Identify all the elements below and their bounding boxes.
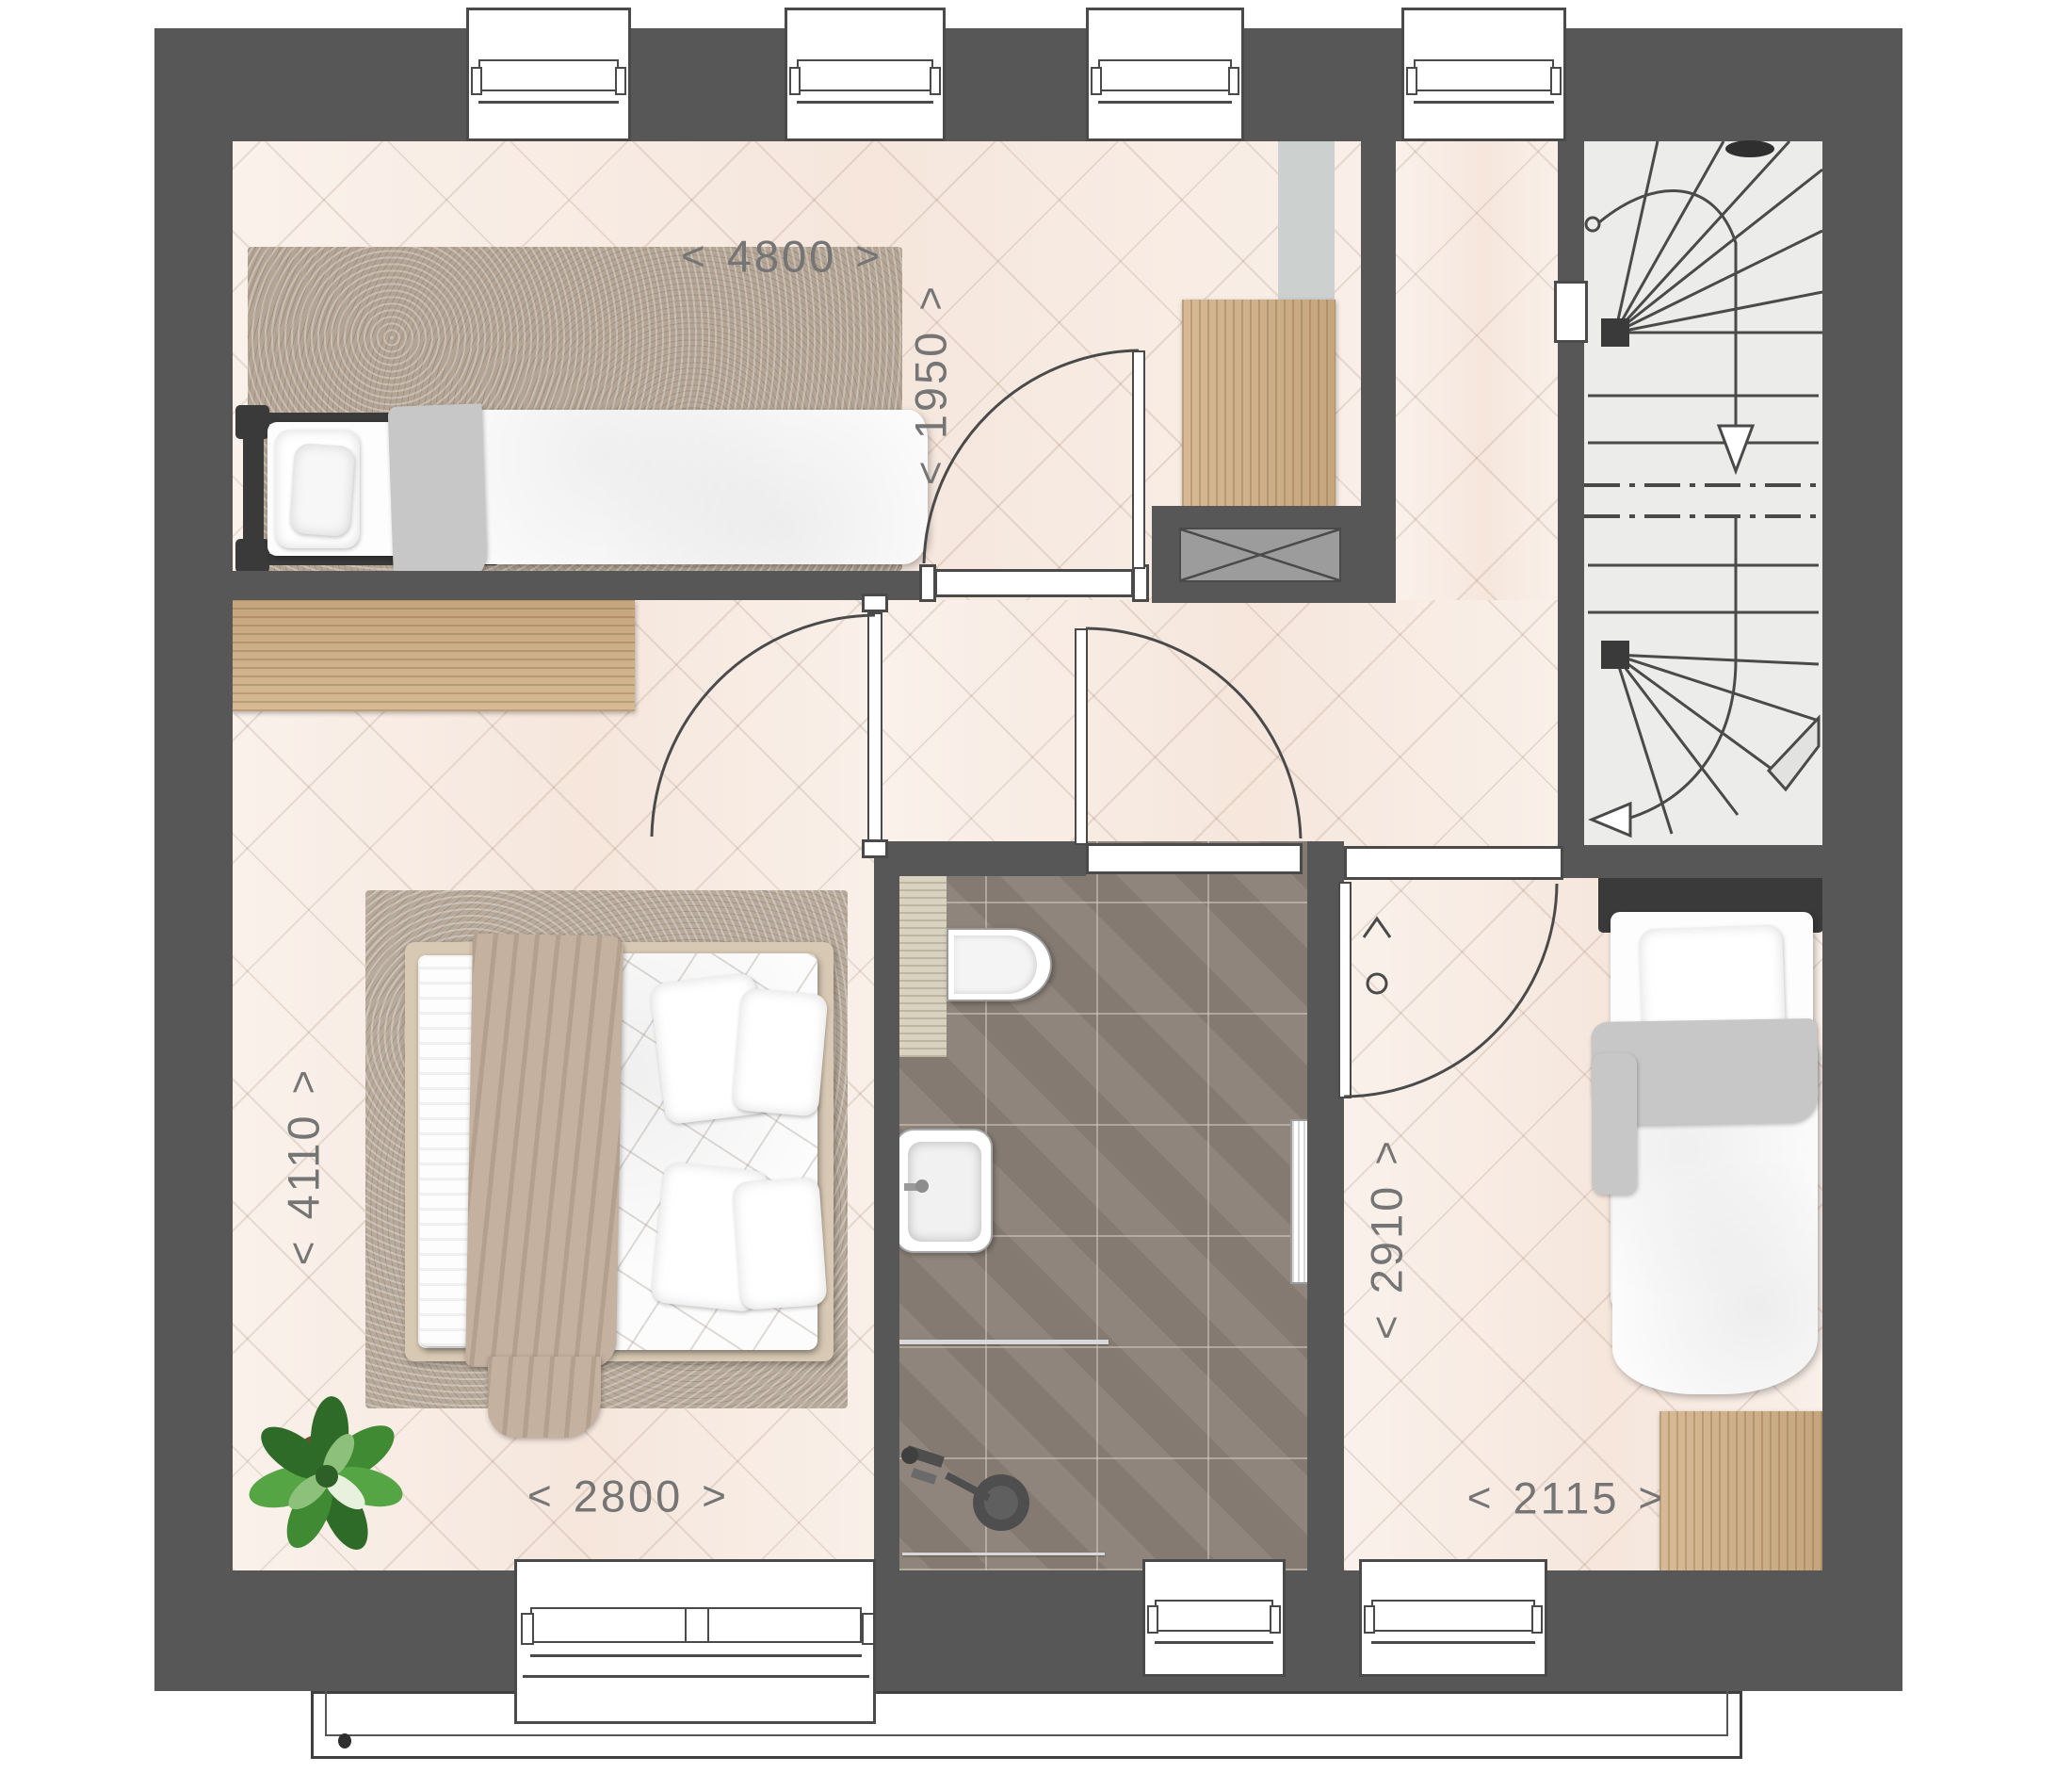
- window-icon: [785, 8, 946, 141]
- dim-arrow-left: <: [907, 458, 954, 485]
- bed-pillow: [732, 987, 829, 1117]
- floor-plan: < 4800 > < 1950 > < 4110 > < 2800 > < 29…: [0, 0, 2072, 1773]
- wall-outer-bottom: [154, 1570, 1902, 1691]
- dimension-2800: < 2800 >: [527, 1471, 729, 1522]
- dim-value: 2800: [574, 1471, 684, 1522]
- dim-arrow-right: >: [907, 284, 954, 311]
- dimension-4800: < 4800 >: [681, 231, 882, 283]
- bed-frame: [1598, 874, 1822, 916]
- window-icon: [1359, 1559, 1547, 1677]
- dim-arrow-right: >: [855, 233, 882, 280]
- shower-glass-partition: [899, 1340, 1109, 1344]
- bed-blanket-gray: [1592, 1053, 1637, 1195]
- door-leaf-bedroom-right: [1338, 882, 1352, 1098]
- desk-bedroom-right: [1659, 1411, 1825, 1570]
- dim-value: 4800: [727, 231, 837, 283]
- dim-arrow-right: >: [280, 1067, 327, 1095]
- door-leaf-bathroom: [1075, 628, 1088, 845]
- dimension-1950: < 1950 >: [905, 284, 957, 485]
- bed-blanket-gray: [388, 403, 489, 591]
- bed-duvet: [433, 410, 928, 564]
- door-leaf-bedroom-top: [1132, 350, 1145, 569]
- single-bed-right: [1592, 874, 1825, 1394]
- bed-frame: [243, 411, 264, 567]
- toilet-icon: [947, 928, 1052, 1001]
- dim-arrow-right: >: [1363, 1138, 1410, 1165]
- door-threshold-bedroom-top: [934, 569, 1134, 597]
- towel-radiator-icon: [1290, 1119, 1309, 1284]
- door-jamb: [1132, 564, 1149, 602]
- vent-shaft-icon: [1179, 528, 1341, 582]
- dim-arrow-left: <: [1363, 1312, 1410, 1340]
- door-leaf-bedroom-master: [867, 612, 882, 841]
- door-jamb: [862, 839, 888, 858]
- door-jamb: [919, 564, 936, 602]
- double-bed-master: [405, 942, 834, 1361]
- door-threshold-bathroom: [1086, 843, 1303, 874]
- door-jamb: [862, 594, 888, 612]
- wall-bathroom-left: [874, 841, 899, 1570]
- dim-arrow-left: <: [527, 1472, 555, 1520]
- bathroom-vanity: [899, 876, 947, 1057]
- sink-icon: [895, 1129, 993, 1253]
- wall-stair-left: [1558, 141, 1584, 845]
- bed-throw-blanket: [465, 934, 623, 1370]
- desk-bedroom-master: [233, 600, 635, 711]
- dim-value: 1950: [905, 330, 957, 440]
- dimension-4110: < 4110 >: [278, 1067, 330, 1265]
- dim-arrow-right: >: [1639, 1474, 1666, 1521]
- wall-outer-left: [154, 28, 233, 1691]
- single-bed-top: [235, 405, 694, 573]
- bed-pillow: [732, 1177, 827, 1310]
- dimension-2115: < 2115 >: [1467, 1472, 1665, 1524]
- wall-bedroomtop-bottom: [233, 571, 923, 600]
- dim-value: 2115: [1513, 1472, 1619, 1524]
- stairwell-floor: [1584, 141, 1822, 845]
- appliance-gray-strip: [1278, 141, 1335, 300]
- wall-outer-right: [1822, 28, 1902, 1691]
- window-icon-master: [514, 1559, 876, 1724]
- wall-stair-bottom: [1558, 845, 1825, 878]
- wall-bedroomtop-right: [1361, 141, 1396, 528]
- dimension-2910: < 2910 >: [1361, 1138, 1413, 1340]
- dim-value: 2910: [1361, 1184, 1413, 1294]
- dim-value: 4110: [278, 1113, 330, 1219]
- window-icon: [1142, 1559, 1286, 1677]
- door-threshold-bedroom-right: [1344, 846, 1563, 880]
- wall-outer-top: [154, 28, 1902, 141]
- dim-arrow-left: <: [681, 233, 708, 280]
- floor-hallway: [875, 600, 1558, 846]
- plant-icon: [247, 1396, 407, 1556]
- dim-arrow-left: <: [280, 1239, 327, 1266]
- wardrobe-bedroom-top: [1182, 300, 1335, 506]
- balcony-drain-dot: [338, 1733, 351, 1749]
- bed-throw-drape: [488, 1357, 601, 1438]
- dim-arrow-right: >: [702, 1472, 729, 1520]
- window-icon: [1086, 8, 1244, 141]
- shower-drain-line: [902, 1553, 1105, 1555]
- dim-arrow-left: <: [1467, 1474, 1495, 1521]
- window-icon: [1401, 8, 1566, 141]
- bed-pillow: [289, 443, 356, 537]
- wall-bathroom-top: [874, 841, 1086, 876]
- stair-entry-threshold: [1554, 281, 1588, 343]
- window-icon: [466, 8, 631, 141]
